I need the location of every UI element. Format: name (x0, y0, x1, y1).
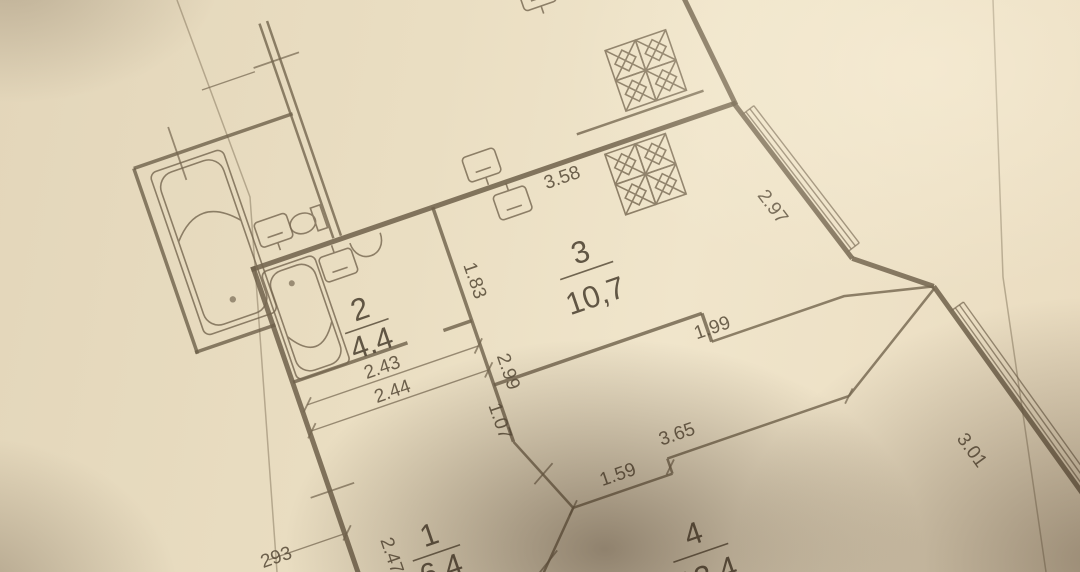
dim-bottom-cut: 2.47 (375, 535, 407, 572)
room-4-label: 4 13.4 (659, 507, 742, 572)
dim-hall-passage: 1.07 (484, 400, 516, 442)
room-number: 3 (567, 233, 595, 272)
bathtub-icon (149, 149, 278, 337)
dim-kitchen-window: 2.97 (753, 186, 792, 228)
dim-room4-top-right: 3.65 (656, 419, 698, 451)
wash-basin-icon (350, 233, 386, 261)
ventilation-shaft-icon (605, 30, 686, 111)
dim-bath-wall-lower: 2.99 (492, 351, 524, 393)
room-area: 13.4 (673, 549, 741, 572)
room-area: 10,7 (561, 269, 629, 322)
room-number: 2 (346, 290, 374, 329)
dimension-labels: 3.58 2.97 1.83 2.99 2.43 2.44 1.07 1.59 … (171, 66, 993, 572)
room-3-label: 3 10,7 (546, 226, 629, 322)
dim-bottom-left-mark: 293 (258, 543, 295, 572)
power-socket-icon (517, 0, 560, 19)
power-socket-icon (253, 212, 296, 255)
bathtub-icon (261, 255, 351, 381)
axis-tick (254, 52, 299, 68)
dim-room4-window: 3.01 (952, 429, 991, 471)
room-1-label: 1 6.4 (401, 510, 472, 572)
paper-boundary-right (993, 0, 1046, 572)
room-area: 6.4 (415, 546, 467, 572)
floor-plan: 1 6.4 2 4.4 3 10,7 4 13.4 3.58 2.97 1.83… (95, 0, 1080, 572)
dimension-lines (116, 0, 877, 572)
floorplan-svg: 1 6.4 2 4.4 3 10,7 4 13.4 3.58 2.97 1.83… (0, 0, 1080, 572)
floorplan-photo: 1 6.4 2 4.4 3 10,7 4 13.4 3.58 2.97 1.83… (0, 0, 1080, 572)
interior-walls (101, 0, 997, 572)
room-number: 4 (679, 514, 707, 553)
room-number: 1 (415, 515, 443, 554)
window-symbol-room4 (950, 280, 1080, 529)
